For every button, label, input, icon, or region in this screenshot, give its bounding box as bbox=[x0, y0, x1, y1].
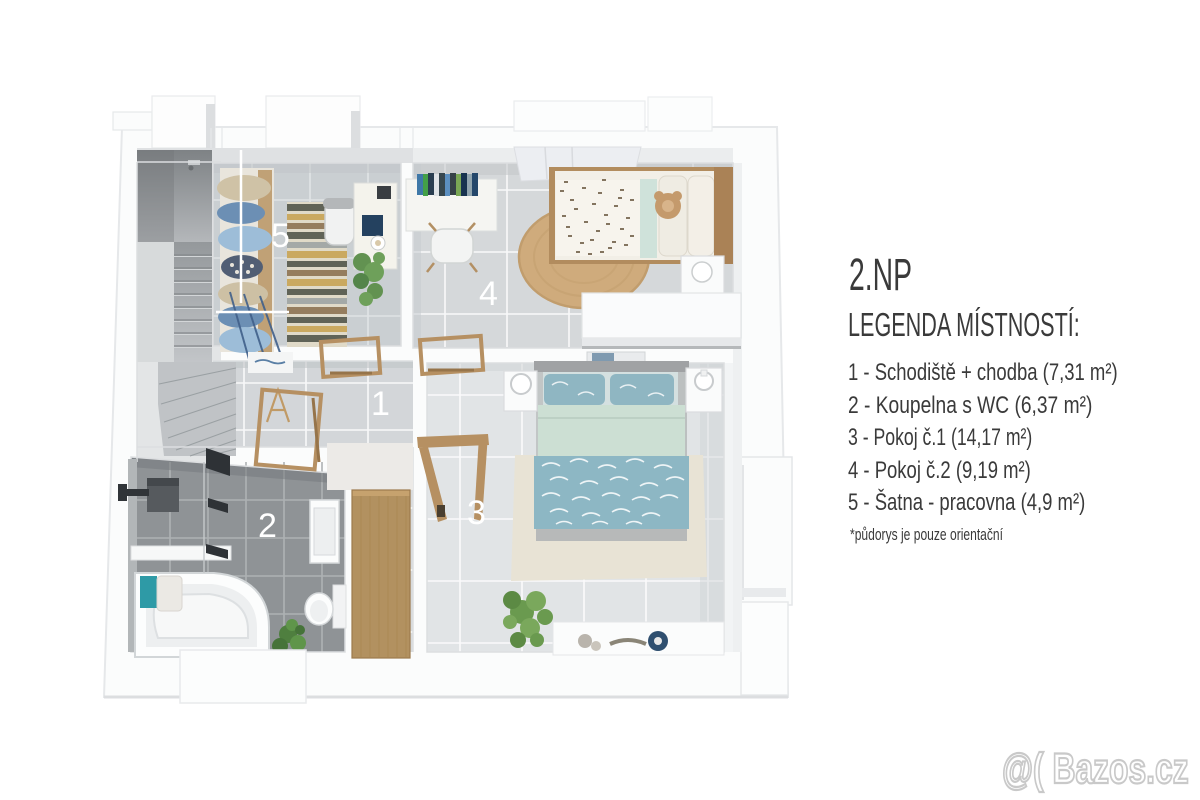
svg-text:4: 4 bbox=[479, 275, 498, 313]
svg-text:1: 1 bbox=[371, 385, 390, 423]
svg-text:2: 2 bbox=[258, 507, 277, 545]
svg-text:3: 3 bbox=[467, 494, 486, 532]
svg-text:5: 5 bbox=[271, 217, 290, 255]
